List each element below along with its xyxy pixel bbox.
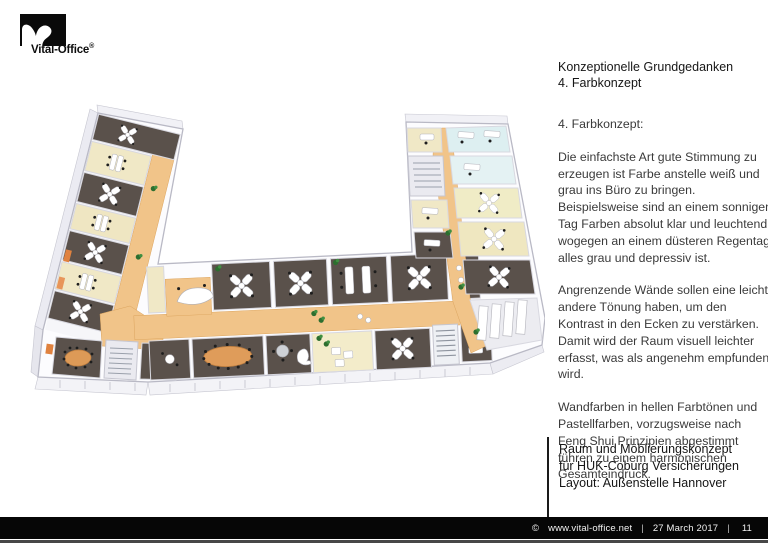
footer-bar: © www.vital-office.net | 27 March 2017 |… <box>0 517 768 539</box>
logo-brand-text: Vital-Office® <box>31 43 94 56</box>
footer-url: www.vital-office.net <box>548 523 632 534</box>
project-block-divider <box>547 437 549 517</box>
registered-mark: ® <box>89 43 94 50</box>
heading-line-2: 4. Farbkonzept <box>558 76 764 92</box>
footer-separator-2: | <box>727 523 730 534</box>
body-paragraph-1: Die einfachste Art gute Stimmung zu erze… <box>558 149 768 267</box>
floor-plan-rendering <box>30 100 545 405</box>
footer-separator-1: | <box>641 523 644 534</box>
project-line-3: Layout: Außenstelle Hannover <box>559 475 765 492</box>
footer-page-number: 11 <box>742 523 752 534</box>
project-line-1: Raum und Möblierungskonzept <box>559 441 765 458</box>
body-intro: 4. Farbkonzept: <box>558 116 768 133</box>
project-block: Raum und Möblierungskonzept für HUK-Cobu… <box>559 441 765 492</box>
slide-heading: Konzeptionelle Grundgedanken 4. Farbkonz… <box>558 60 764 91</box>
heading-line-1: Konzeptionelle Grundgedanken <box>558 60 764 76</box>
project-line-2: für HUK-Coburg Versicherungen <box>559 458 765 475</box>
footer-date: 27 March 2017 <box>653 523 718 534</box>
body-paragraph-2: Angrenzende Wände sollen eine leicht and… <box>558 282 768 383</box>
slide-page: Vital-Office® <box>0 0 768 543</box>
vital-office-logo: Vital-Office® <box>20 14 220 62</box>
brand-name: Vital-Office <box>31 44 89 56</box>
copyright-symbol: © <box>532 523 539 534</box>
